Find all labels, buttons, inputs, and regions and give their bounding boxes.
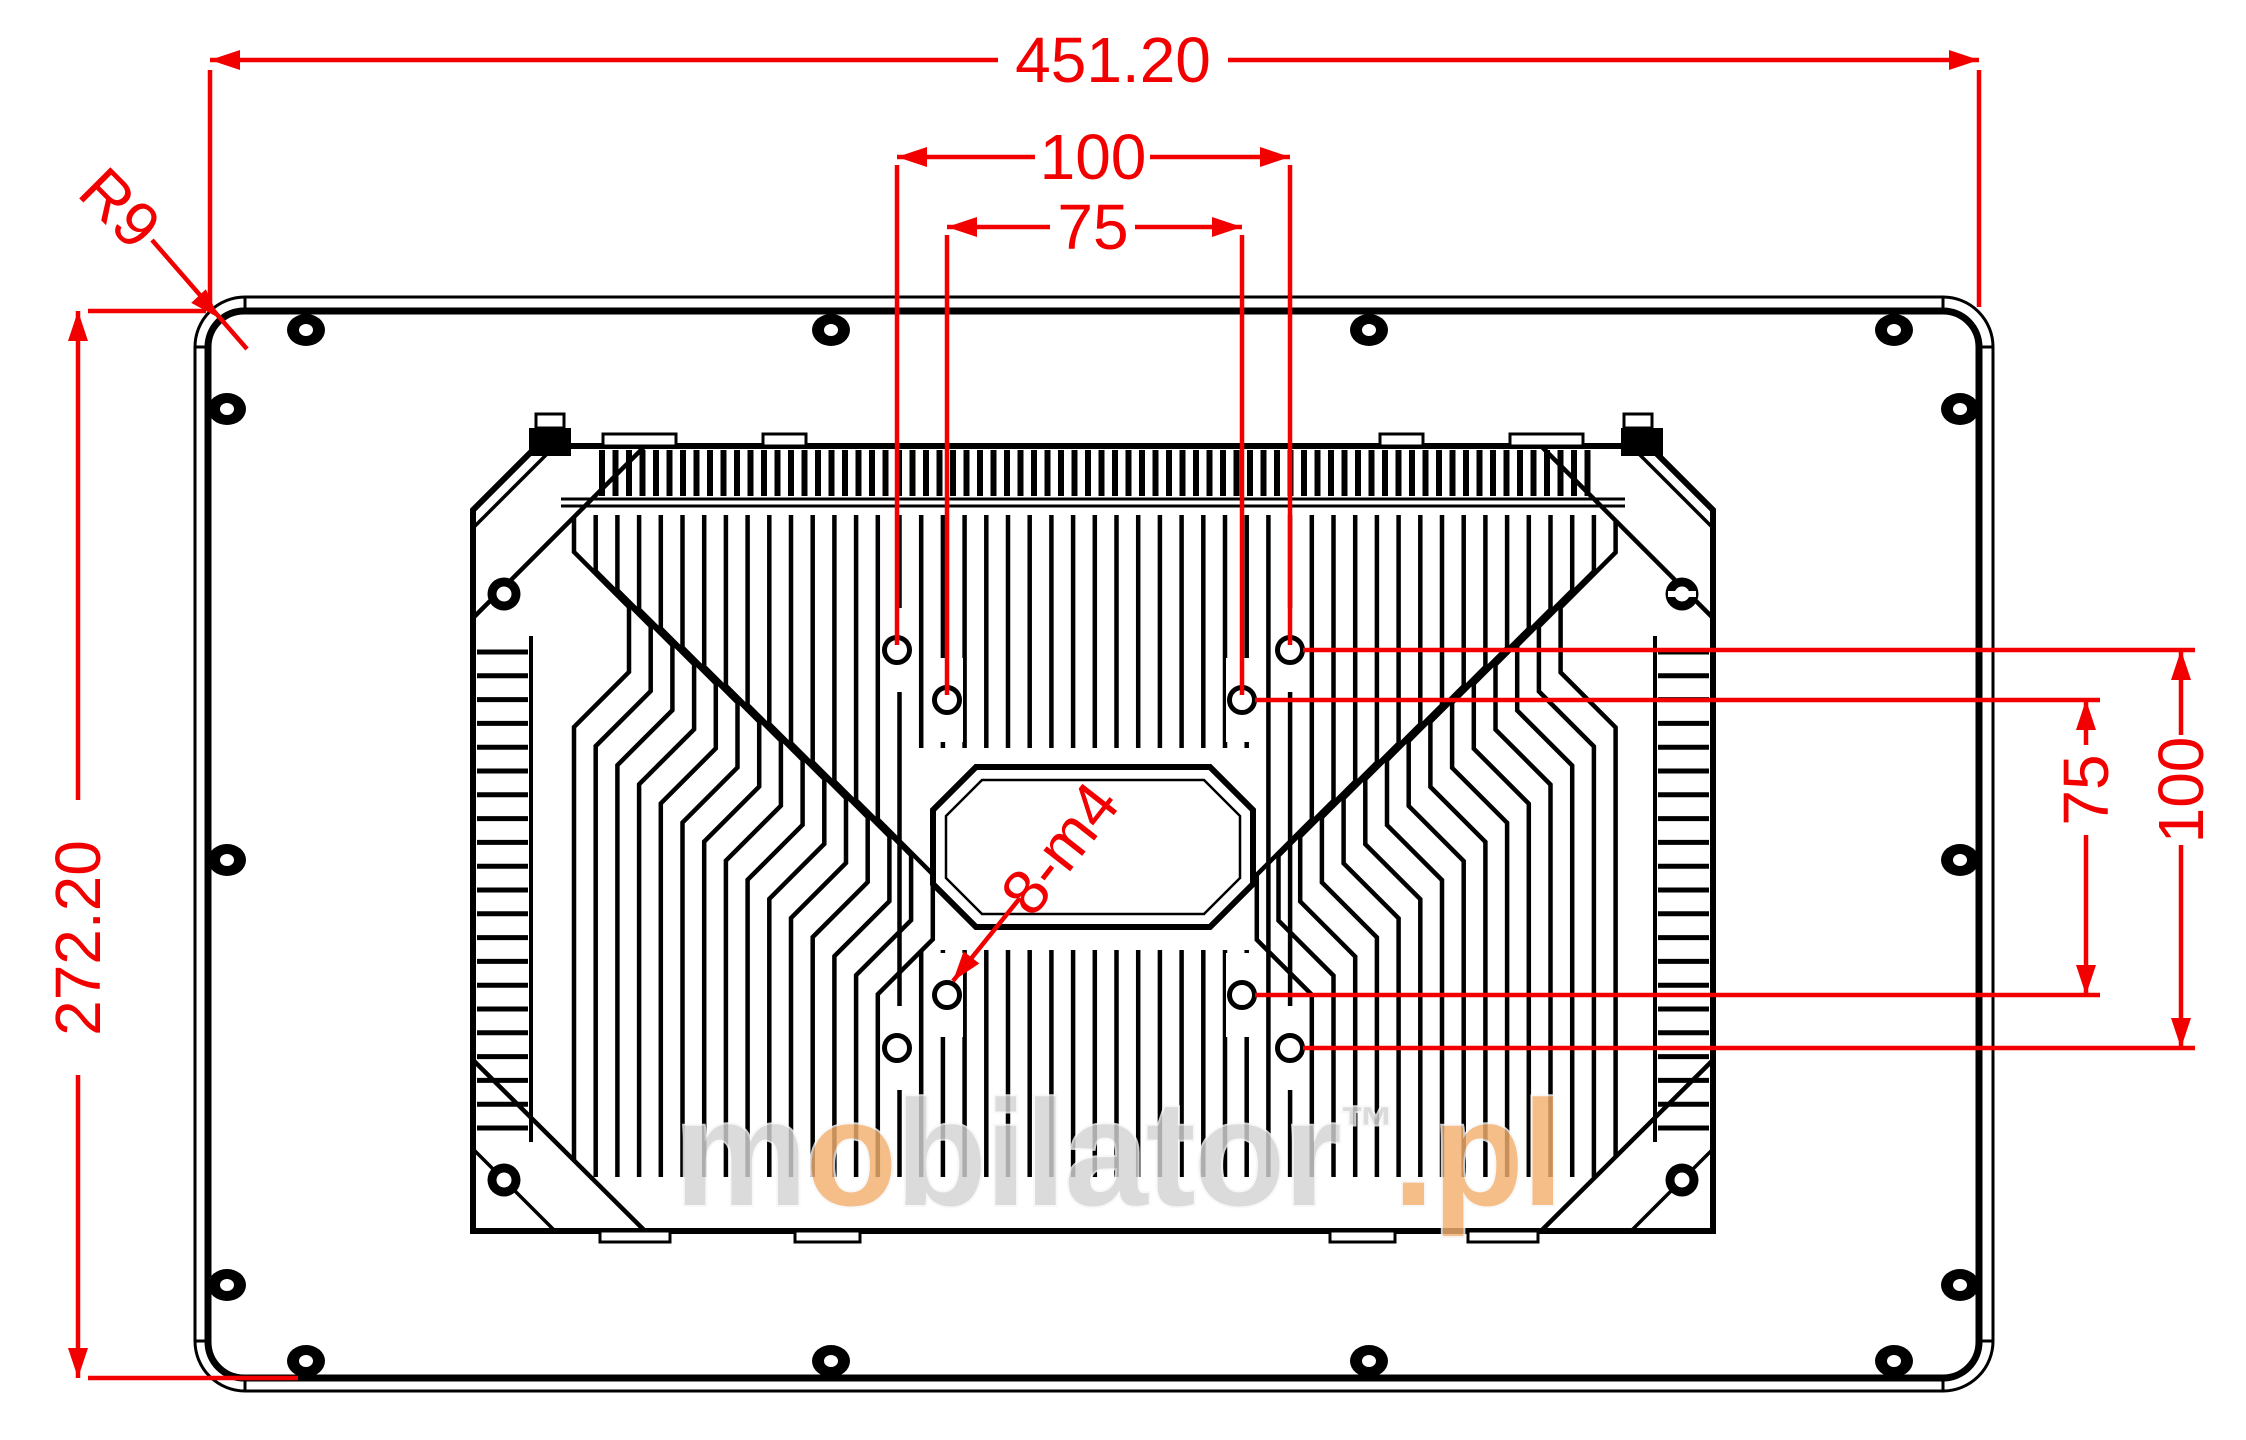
dim-vesa-width-100: 100 xyxy=(1040,121,1147,193)
top-connector-left xyxy=(529,414,571,456)
watermark-m: m xyxy=(674,1069,805,1237)
watermark: mobilator™.pl xyxy=(674,1069,1561,1237)
dim-overall-height: 272.20 xyxy=(42,840,114,1036)
watermark-bilator: bilator xyxy=(895,1069,1340,1237)
dim-overall-width: 451.20 xyxy=(1015,24,1211,96)
watermark-pl: .pl xyxy=(1393,1069,1562,1237)
dim-vesa-height-100: 100 xyxy=(2145,737,2217,844)
watermark-tm: ™ xyxy=(1340,1095,1393,1157)
dim-vesa-height-75: 75 xyxy=(2050,754,2122,825)
drawing-canvas: mobilator™.pl 451.20 100 75 272.20 75 10… xyxy=(0,0,2246,1440)
dim-vesa-width-75: 75 xyxy=(1057,191,1128,263)
technical-drawing: mobilator™.pl 451.20 100 75 272.20 75 10… xyxy=(0,0,2246,1440)
watermark-o: o xyxy=(806,1069,896,1237)
